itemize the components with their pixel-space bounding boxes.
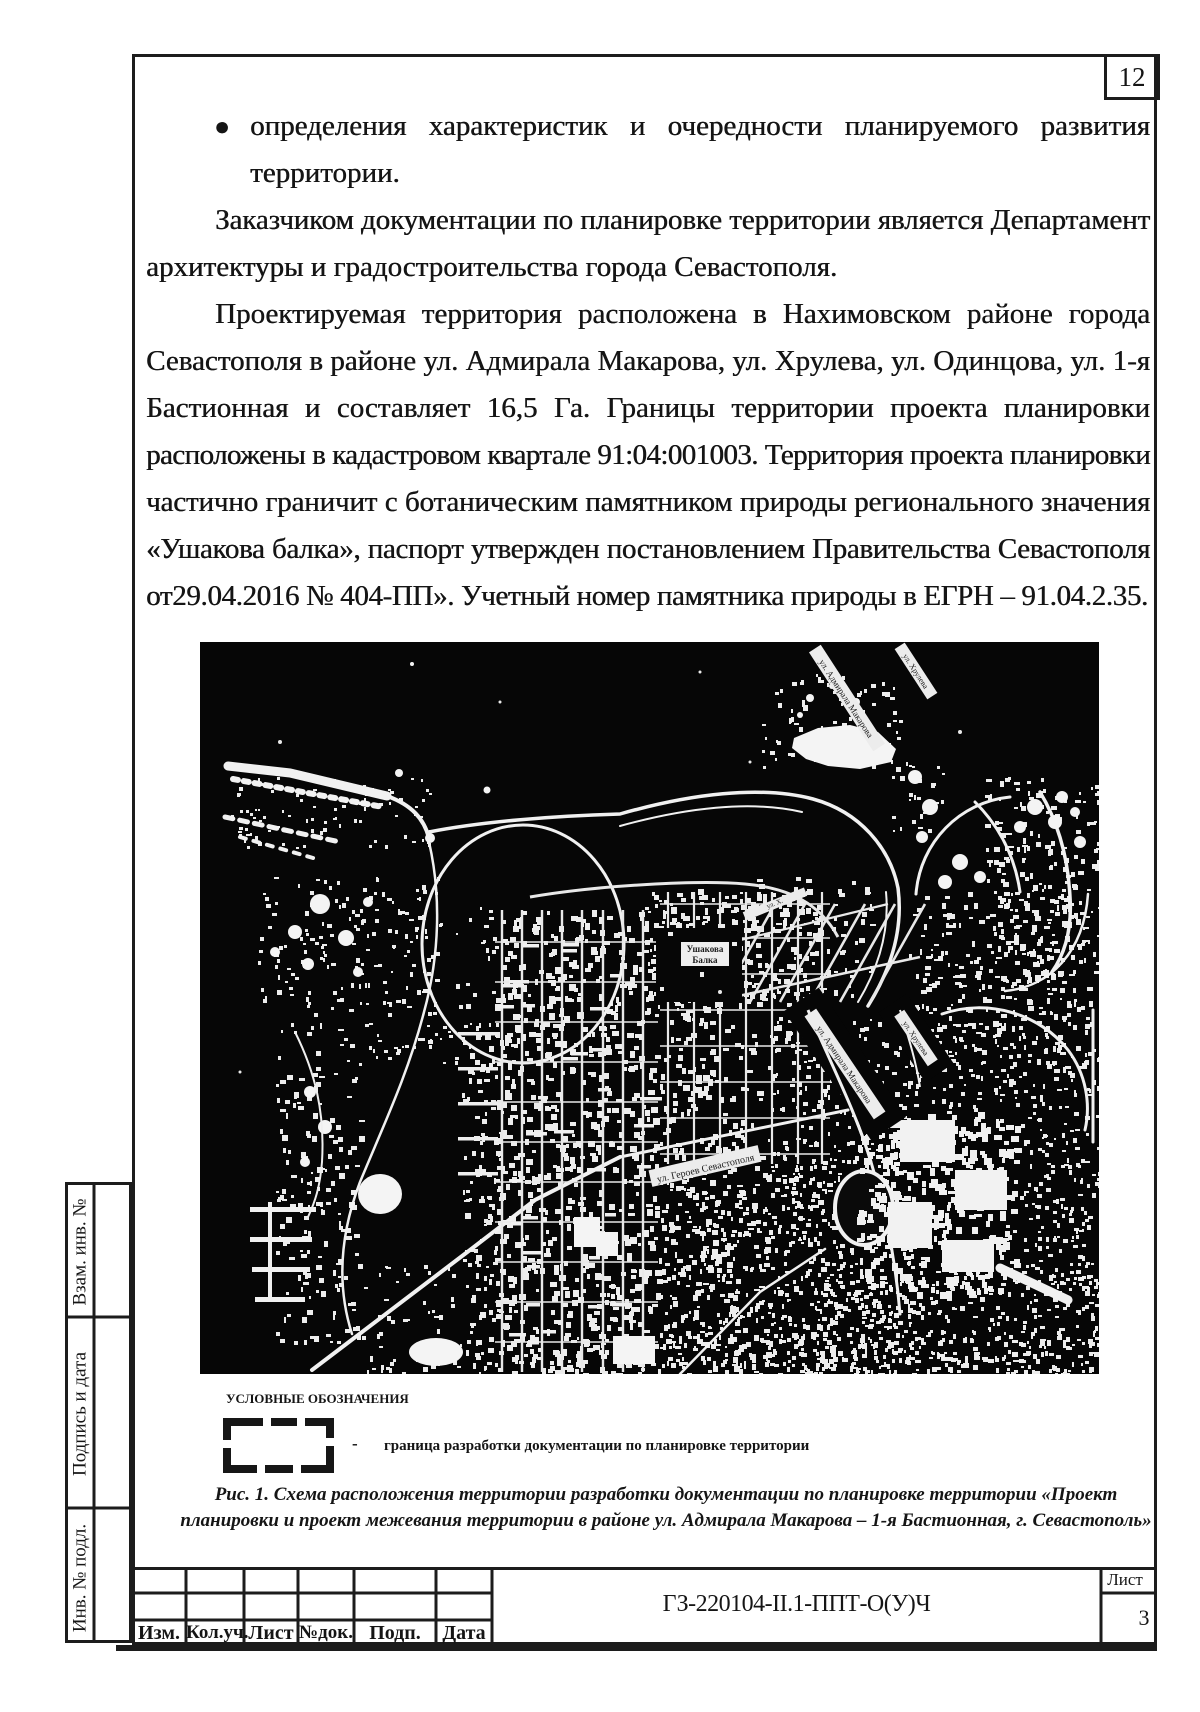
svg-text:Балка: Балка [692,955,718,965]
svg-text:Ушакова: Ушакова [687,944,724,954]
